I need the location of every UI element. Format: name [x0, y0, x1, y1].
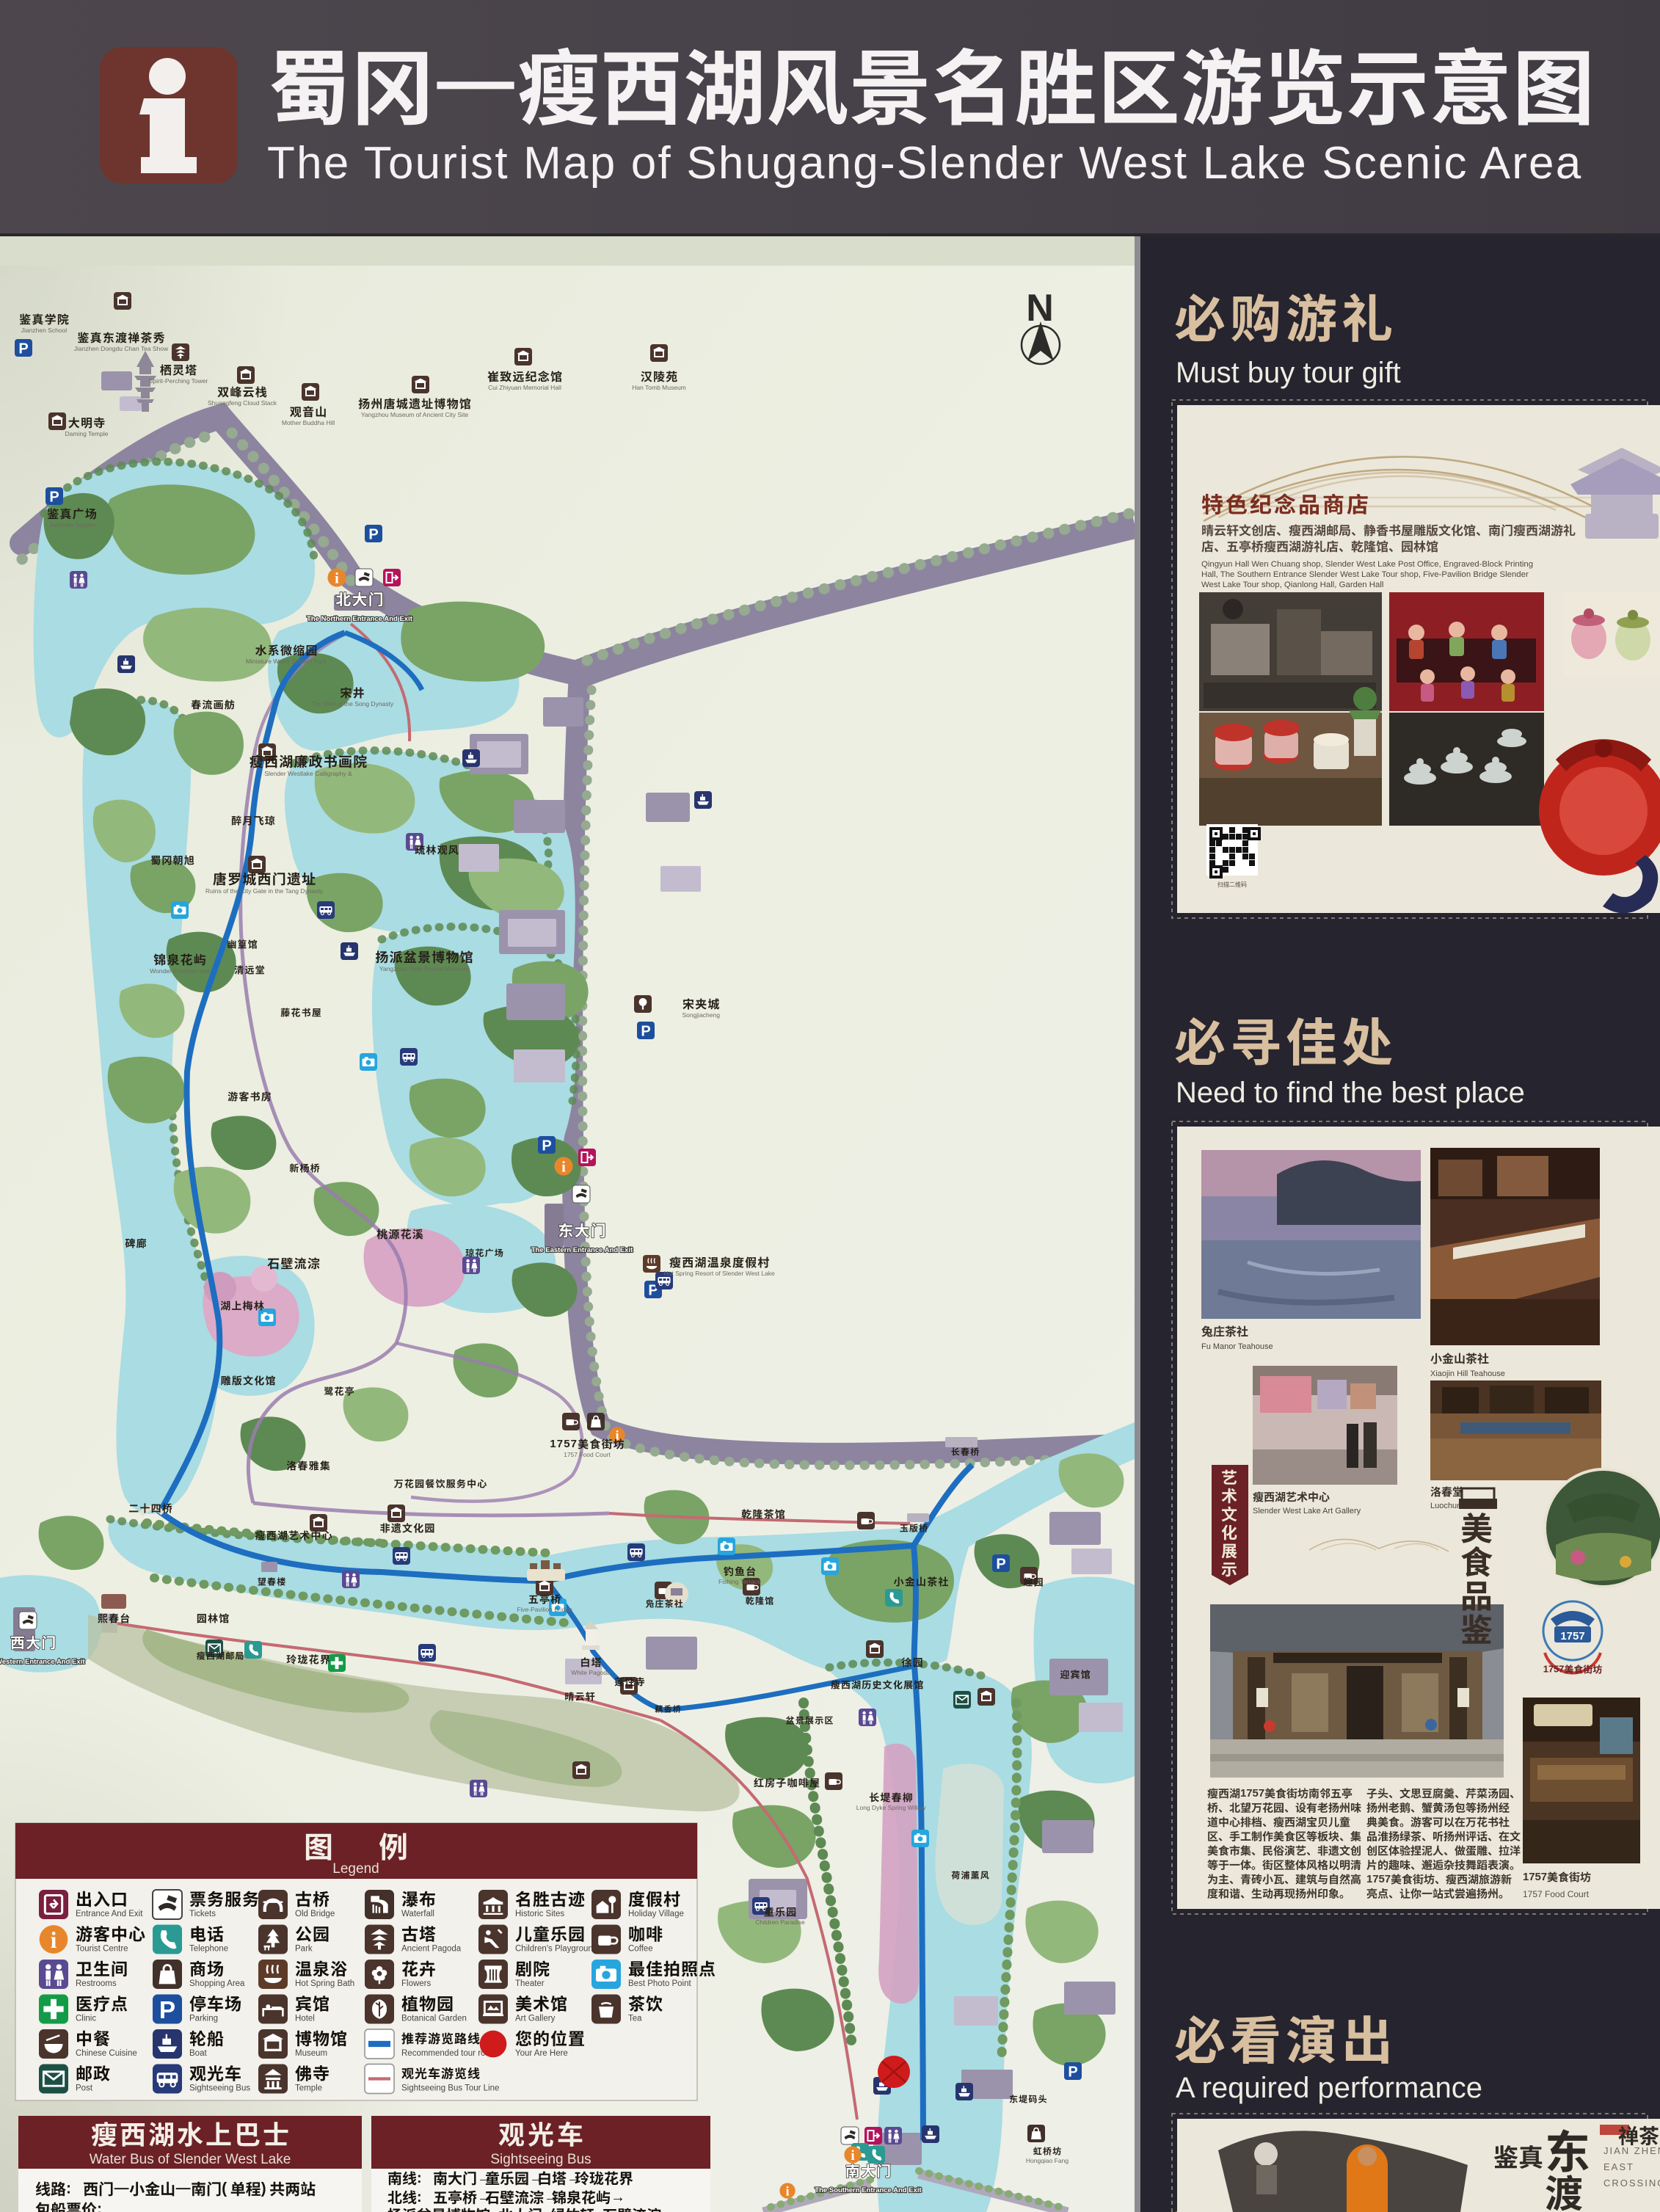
svg-text:1757 Food Court: 1757 Food Court	[564, 1451, 611, 1458]
svg-text:EAST: EAST	[1603, 2161, 1634, 2172]
svg-text:A required performance: A required performance	[1176, 2072, 1482, 2104]
svg-text:P: P	[159, 1997, 175, 2024]
svg-text:7: 7	[557, 1438, 563, 1450]
svg-text:Miniature Water System Park: Miniature Water System Park	[246, 658, 327, 665]
svg-text:i: i	[851, 2148, 854, 2164]
svg-text:Telephone: Telephone	[189, 1945, 228, 1954]
svg-text:Park: Park	[295, 1945, 313, 1954]
svg-text::: :	[66, 2180, 71, 2197]
svg-text:P: P	[542, 1138, 551, 1154]
svg-text:The Tourist Map of Shugang-Sle: The Tourist Map of Shugang-Slender West …	[267, 138, 1582, 189]
svg-text:Flowers: Flowers	[401, 1979, 432, 1988]
svg-text:Hall, The Southern Entrance Sl: Hall, The Southern Entrance Slender West…	[1201, 570, 1529, 579]
svg-text:Botanical Garden: Botanical Garden	[401, 2015, 467, 2023]
svg-text:Parking: Parking	[189, 2015, 218, 2023]
svg-text:Tourist Centre: Tourist Centre	[76, 1945, 128, 1954]
svg-text:Need to find the best place: Need to find the best place	[1176, 1077, 1525, 1109]
svg-text:Water Bus of Slender West Lake: Water Bus of Slender West Lake	[90, 2152, 291, 2167]
svg-text:Hotel: Hotel	[295, 2015, 315, 2023]
svg-text:Tea: Tea	[628, 2015, 642, 2023]
svg-text:Jianzhen Dongdu Chan Tea Show: Jianzhen Dongdu Chan Tea Show	[74, 345, 169, 352]
svg-text:CROSSING: CROSSING	[1603, 2178, 1660, 2189]
svg-text:Yangzhou Style Bonsai Museum: Yangzhou Style Bonsai Museum	[379, 965, 469, 972]
svg-text:Hongqiao Fang: Hongqiao Fang	[1026, 2157, 1069, 2164]
svg-text:Hot Spring Resort of Slender W: Hot Spring Resort of Slender West Lake	[664, 1270, 775, 1277]
svg-text:→: →	[661, 2207, 676, 2212]
svg-text:7: 7	[1548, 1663, 1554, 1674]
svg-text:1: 1	[1366, 1873, 1372, 1885]
svg-text:扫描二维码: 扫描二维码	[1217, 881, 1247, 888]
svg-text:7: 7	[1372, 1873, 1378, 1885]
svg-text:7: 7	[1559, 1663, 1564, 1674]
svg-text:Ruins of the City Gate in the: Ruins of the City Gate in the Tang Dynas…	[205, 887, 324, 895]
svg-text:The Western Entrance And Exit: The Western Entrance And Exit	[0, 1658, 85, 1666]
svg-text:Old Bridge: Old Bridge	[295, 1910, 335, 1918]
svg-text:1: 1	[1240, 1787, 1246, 1800]
svg-text:Best Photo Point: Best Photo Point	[628, 1979, 691, 1988]
svg-text:i: i	[51, 1927, 57, 1953]
svg-text:P: P	[18, 341, 28, 357]
svg-text:Fu Manor Teahouse: Fu Manor Teahouse	[1201, 1342, 1273, 1351]
svg-text:Clinic: Clinic	[76, 2015, 96, 2023]
svg-text:The Southern Entrance And Exit: The Southern Entrance And Exit	[815, 2186, 922, 2194]
svg-text:Entrance And Exit: Entrance And Exit	[76, 1910, 143, 1918]
svg-text:Waterfall: Waterfall	[401, 1910, 434, 1918]
svg-text:Jianzhen Square: Jianzhen Square	[48, 521, 95, 528]
svg-text:P: P	[641, 1024, 650, 1040]
svg-text:1757 Food Court: 1757 Food Court	[1523, 1889, 1590, 1899]
svg-text:Daming Temple: Daming Temple	[65, 430, 109, 437]
svg-text:7: 7	[1385, 1873, 1391, 1885]
svg-text:Museum: Museum	[295, 2049, 327, 2058]
svg-text:Wonder Fountain and: Wonder Fountain and	[150, 967, 210, 975]
svg-text:5: 5	[1535, 1871, 1541, 1883]
svg-text:5: 5	[1253, 1787, 1259, 1800]
svg-text:P: P	[1068, 2064, 1077, 2081]
svg-text:1757: 1757	[1560, 1630, 1584, 1642]
svg-text:Slender Westlake Calligraphy &: Slender Westlake Calligraphy &	[264, 770, 352, 777]
svg-text:1: 1	[1543, 1663, 1548, 1674]
svg-text:Post: Post	[76, 2084, 93, 2093]
svg-text:Fishing Terrace: Fishing Terrace	[718, 1578, 761, 1585]
svg-text:Historic Sites: Historic Sites	[515, 1910, 564, 1918]
svg-text:P: P	[49, 490, 59, 506]
svg-text:Tickets: Tickets	[189, 1910, 216, 1918]
svg-text:Must buy tour gift: Must buy tour gift	[1176, 357, 1401, 389]
svg-text:Temple: Temple	[295, 2084, 322, 2093]
svg-text:i: i	[561, 1160, 566, 1176]
svg-text:Five-Pavilion Bridge: Five-Pavilion Bridge	[517, 1606, 572, 1613]
svg-text:The Northern Entrance And Exit: The Northern Entrance And Exit	[307, 615, 413, 623]
svg-text:7: 7	[1529, 1871, 1535, 1883]
svg-text:7: 7	[1246, 1787, 1252, 1800]
svg-text::: :	[417, 2170, 422, 2186]
svg-text:Mother Buddha Hill: Mother Buddha Hill	[282, 419, 335, 426]
svg-text:Theater: Theater	[515, 1979, 545, 1988]
svg-text:Songjiacheng: Songjiacheng	[682, 1011, 720, 1019]
svg-text:Chinese Cuisine: Chinese Cuisine	[76, 2049, 137, 2058]
svg-text:Boat: Boat	[189, 2049, 207, 2058]
svg-text:Holiday Village: Holiday Village	[628, 1910, 684, 1918]
svg-text:Children Paradise: Children Paradise	[755, 1918, 805, 1926]
svg-text:Shuangfeng Cloud Stack: Shuangfeng Cloud Stack	[208, 399, 277, 407]
svg-text:JIAN ZHEN: JIAN ZHEN	[1603, 2145, 1660, 2156]
svg-text:West Lake Tour shop, Qianlong: West Lake Tour shop, Qianlong Hall, Gard…	[1201, 581, 1383, 589]
svg-text::: :	[417, 2189, 422, 2205]
svg-text:Legend: Legend	[332, 1861, 379, 1877]
svg-text:P: P	[368, 527, 378, 543]
svg-text:): )	[261, 2180, 266, 2197]
svg-text:Children's Playground: Children's Playground	[515, 1945, 597, 1954]
svg-text:7: 7	[1259, 1787, 1264, 1800]
svg-text:Xiaojin Hill Teahouse: Xiaojin Hill Teahouse	[1430, 1369, 1505, 1378]
svg-text:1: 1	[1523, 1871, 1529, 1883]
svg-text:(: (	[222, 2180, 227, 2197]
svg-text:Han Tomb Museum: Han Tomb Museum	[632, 384, 686, 391]
svg-text:5: 5	[1379, 1873, 1385, 1885]
svg-text:5: 5	[564, 1438, 569, 1450]
svg-text:Ancient Pagoda: Ancient Pagoda	[401, 1945, 462, 1954]
svg-text:Sightseeing Bus Tour Line: Sightseeing Bus Tour Line	[401, 2084, 499, 2093]
svg-text:Hot Spring Bath: Hot Spring Bath	[295, 1979, 354, 1988]
svg-text:7: 7	[1541, 1871, 1547, 1883]
svg-text:Coffee: Coffee	[628, 1945, 653, 1954]
svg-text:Cui Zhiyuan Memorial Hall: Cui Zhiyuan Memorial Hall	[488, 384, 561, 391]
svg-text:The Eastern Entrance And Exit: The Eastern Entrance And Exit	[531, 1246, 633, 1254]
svg-text:Restrooms: Restrooms	[76, 1979, 117, 1988]
svg-text:The Well of the Song Dynasty: The Well of the Song Dynasty	[311, 700, 394, 707]
svg-text:Jianzhen School: Jianzhen School	[21, 327, 67, 334]
svg-text:Slender West Lake Art Gallery: Slender West Lake Art Gallery	[1253, 1507, 1361, 1516]
svg-text:Sightseeing Bus: Sightseeing Bus	[189, 2084, 250, 2093]
svg-text:Qingyun Hall Wen Chuang shop,: Qingyun Hall Wen Chuang shop, Slender We…	[1201, 560, 1533, 569]
svg-text:5: 5	[1554, 1663, 1559, 1674]
svg-text:Yangzhou Museum of Ancient Cit: Yangzhou Museum of Ancient City Site	[361, 411, 469, 418]
svg-text:White Pagoda: White Pagoda	[571, 1669, 611, 1676]
svg-text:Sightseeing Bus: Sightseeing Bus	[490, 2152, 591, 2167]
svg-text:i: i	[786, 2183, 790, 2198]
svg-text::: :	[97, 2201, 102, 2212]
svg-text:i: i	[335, 571, 339, 587]
svg-text:Your Are Here: Your Are Here	[515, 2049, 568, 2058]
svg-text:Long Dyke Spring Willow: Long Dyke Spring Willow	[856, 1804, 926, 1811]
svg-text:Art Gallery: Art Gallery	[515, 2015, 556, 2023]
svg-text:Shopping Area: Shopping Area	[189, 1979, 245, 1988]
svg-text:1: 1	[550, 1438, 556, 1450]
svg-text:N: N	[1026, 287, 1054, 330]
svg-text:Spirit-Perching Tower: Spirit-Perching Tower	[149, 377, 208, 385]
svg-text:7: 7	[571, 1438, 577, 1450]
svg-text:→: →	[542, 2207, 557, 2212]
svg-text:P: P	[996, 1557, 1005, 1573]
svg-text:→: →	[611, 2189, 625, 2205]
